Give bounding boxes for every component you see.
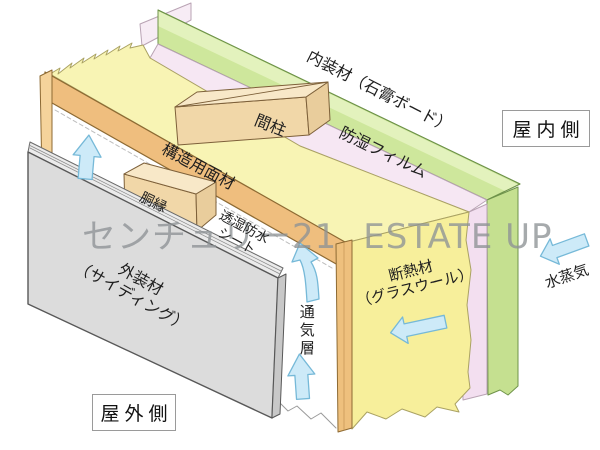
indoor-zone-box: 屋内側: [502, 110, 590, 147]
airflow-up-arrow-bottom: [286, 353, 316, 400]
air-gap-label: 通気層: [297, 304, 314, 358]
wall-construction-diagram: センチュリー21ESTATE UP 内装材（石膏ボード） 防湿フィルム 間柱 構…: [0, 0, 600, 450]
sheet-torn-bottom-edge: [278, 401, 336, 428]
stud-block: [175, 82, 330, 145]
watermark: センチュリー21ESTATE UP: [82, 209, 553, 258]
outdoor-zone-box: 屋外側: [92, 394, 176, 431]
